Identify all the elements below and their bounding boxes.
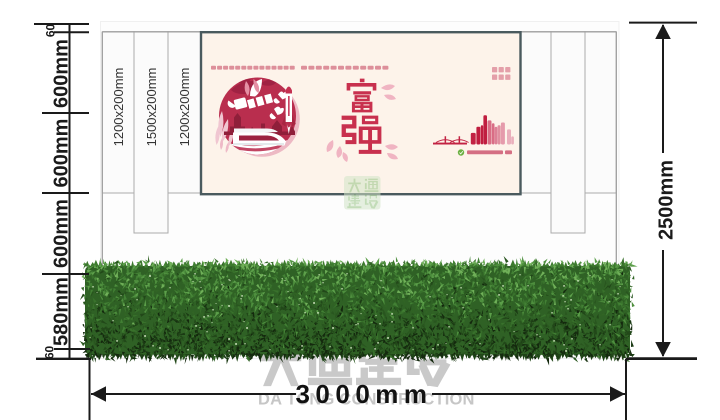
svg-text:1200x200mm: 1200x200mm	[111, 68, 126, 147]
svg-text:1500x200mm: 1500x200mm	[144, 68, 159, 147]
svg-text:60: 60	[44, 24, 58, 38]
svg-text:600mm: 600mm	[51, 199, 73, 268]
svg-text:580mm: 580mm	[51, 277, 73, 346]
svg-text:600mm: 600mm	[51, 119, 73, 188]
svg-text:600mm: 600mm	[51, 39, 73, 108]
svg-text:1200x200mm: 1200x200mm	[177, 68, 192, 147]
svg-text:2500mm: 2500mm	[656, 160, 678, 240]
svg-text:60: 60	[43, 346, 57, 360]
svg-text:3000mm: 3000mm	[295, 379, 432, 409]
